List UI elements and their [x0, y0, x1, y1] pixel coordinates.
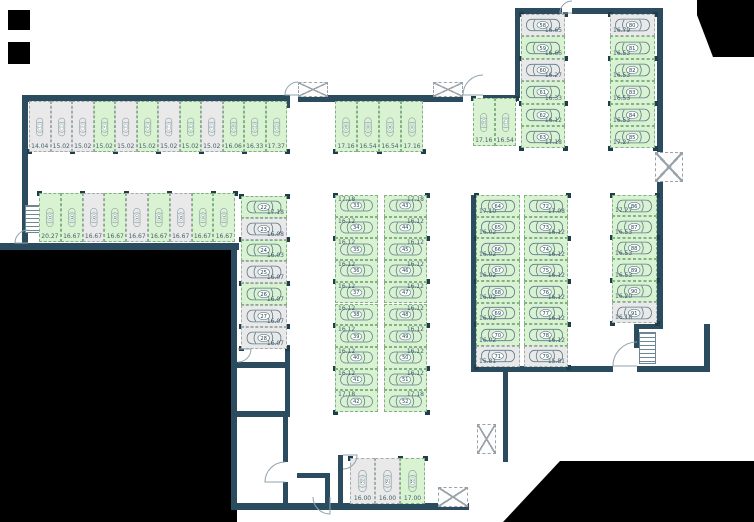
parking-spot-28[interactable]: 2816.07	[241, 327, 287, 349]
spot-area-label: 17.16	[336, 144, 356, 150]
spot-area-label: 16.12	[338, 240, 355, 246]
spot-area-label: 17.18	[407, 392, 424, 398]
spot-area-label: 16.12	[407, 240, 424, 246]
spot-area-label: 16.79	[613, 28, 630, 34]
parking-spot-2[interactable]: 215.02	[51, 101, 73, 152]
spot-area-label: 16.12	[338, 262, 355, 268]
spot-area-label: 16.65	[545, 28, 562, 34]
door-swing-arc-icon	[463, 75, 483, 95]
car-top-view-icon: 21	[216, 208, 233, 228]
parking-spot-22[interactable]: 2217.18	[241, 196, 287, 218]
parking-spot-35[interactable]: 3516.12	[335, 238, 378, 260]
spot-area-label: 16.12	[548, 273, 565, 279]
svg-text:19: 19	[179, 216, 183, 220]
spot-area-label: 16.12	[407, 349, 424, 355]
spot-area-label: 16.02	[479, 273, 496, 279]
wall	[704, 324, 710, 372]
parking-spot-62[interactable]: 6216.12	[521, 104, 565, 126]
spot-area-label: 16.53	[615, 251, 632, 257]
staircase-icon	[25, 205, 40, 233]
svg-text:16: 16	[113, 216, 117, 220]
spot-area-label: 16.53	[613, 118, 630, 124]
parking-spot-75[interactable]: 7516.12	[524, 260, 568, 282]
car-top-view-icon: 30	[359, 117, 377, 137]
spot-area-label: 15.02	[181, 144, 201, 150]
car-top-view-icon: 3	[74, 117, 92, 137]
parking-spot-23[interactable]: 2316.08	[241, 218, 287, 240]
spot-area-label: 16.33	[245, 144, 265, 150]
spot-area-label: 16.07	[267, 275, 284, 281]
crossed-shaft-icon	[438, 487, 468, 507]
parking-spot-59[interactable]: 5916.66	[521, 36, 565, 58]
parking-spot-10[interactable]: 1016.06	[223, 101, 245, 152]
svg-text:45: 45	[402, 247, 408, 253]
parking-spot-44[interactable]: 4416.12	[384, 217, 427, 239]
parking-spot-15[interactable]: 1516.67	[83, 193, 105, 242]
svg-text:55: 55	[411, 479, 415, 483]
parking-spot-27[interactable]: 2716.07	[241, 305, 287, 327]
parking-spot-1[interactable]: 114.04	[29, 101, 51, 152]
spot-area-label: 15.02	[73, 144, 93, 150]
spot-area-label: 16.07	[267, 319, 284, 325]
parking-spot-55[interactable]: 5517.00	[400, 458, 425, 504]
parking-spot-69[interactable]: 6916.02	[476, 303, 520, 325]
parking-spot-64[interactable]: 6417.10	[476, 195, 520, 217]
spot-area-label: 17.27	[613, 140, 630, 146]
spot-area-label: 17.37	[267, 144, 287, 150]
svg-text:37: 37	[353, 290, 359, 296]
spot-area-label: 17.08	[548, 209, 565, 215]
svg-text:43: 43	[402, 204, 408, 210]
spot-area-label: 16.20	[615, 294, 632, 300]
svg-text:20: 20	[200, 216, 204, 220]
svg-text:54: 54	[386, 479, 390, 483]
parking-spot-88[interactable]: 8816.53	[612, 238, 657, 259]
wall	[637, 366, 710, 372]
parking-spot-45[interactable]: 4516.12	[384, 238, 427, 260]
spot-area-label: 16.27	[545, 73, 562, 79]
parking-spot-7[interactable]: 715.02	[158, 101, 180, 152]
spot-area-label: 16.53	[613, 51, 630, 57]
parking-spot-9[interactable]: 915.02	[201, 101, 223, 152]
parking-spot-57[interactable]: 5716.54	[495, 98, 517, 146]
parking-spot-32[interactable]: 3217.16	[401, 101, 423, 152]
svg-text:49: 49	[402, 334, 408, 340]
spot-area-label: 16.67	[149, 234, 169, 240]
spot-area-label: 16.12	[548, 338, 565, 344]
car-top-view-icon: 53	[355, 470, 371, 493]
svg-text:41: 41	[353, 377, 359, 383]
spot-area-label: 16.12	[338, 306, 355, 312]
svg-text:48: 48	[402, 312, 408, 318]
spot-area-label: 16.12	[338, 349, 355, 355]
car-top-view-icon: 8	[181, 117, 199, 137]
wall	[237, 362, 290, 368]
svg-text:17: 17	[135, 216, 139, 220]
car-top-view-icon: 19	[172, 208, 189, 228]
spot-area-label: 16.06	[224, 144, 244, 150]
car-top-view-icon: 56	[475, 112, 492, 132]
spot-area-label: 16.53	[615, 273, 632, 279]
spot-area-label: 16.02	[479, 295, 496, 301]
car-top-view-icon: 55	[405, 470, 421, 493]
spot-area-label: 16.67	[193, 234, 213, 240]
spot-area-label: 17.00	[401, 496, 424, 502]
parking-spot-5[interactable]: 515.02	[115, 101, 137, 152]
spot-area-label: 16.08	[267, 232, 284, 238]
car-top-view-icon: 4	[95, 117, 113, 137]
spot-area-label: 16.33	[545, 96, 562, 102]
parking-spot-21[interactable]: 2116.67	[213, 193, 235, 242]
parking-spot-54[interactable]: 5416.00	[375, 458, 400, 504]
parking-spot-37[interactable]: 3716.12	[335, 282, 378, 304]
svg-text:13: 13	[48, 216, 52, 220]
spot-area-label: 16.12	[548, 252, 565, 258]
car-top-view-icon: 9	[203, 117, 221, 137]
spot-area-label: 16.00	[376, 496, 399, 502]
parking-spot-30[interactable]: 3016.54	[357, 101, 379, 152]
parking-spot-17[interactable]: 1716.67	[126, 193, 148, 242]
spot-area-label: 17.16	[474, 138, 494, 144]
spot-area-label: 16.07	[267, 341, 284, 347]
parking-spot-72[interactable]: 7217.08	[524, 195, 568, 217]
spot-area-label: 17.18	[338, 392, 355, 398]
spot-area-label: 16.12	[548, 230, 565, 236]
parking-spot-67[interactable]: 6716.02	[476, 260, 520, 282]
parking-spot-4[interactable]: 415.02	[94, 101, 116, 152]
wall	[0, 243, 239, 250]
parking-spot-46[interactable]: 4616.12	[384, 260, 427, 282]
spot-area-label: 16.02	[479, 338, 496, 344]
svg-text:46: 46	[402, 269, 408, 275]
spot-area-label: 16.53	[615, 230, 632, 236]
parking-spot-43[interactable]: 4317.18	[384, 195, 427, 217]
spot-area-label: 16.54	[496, 138, 516, 144]
svg-text:42: 42	[353, 399, 359, 405]
parking-spot-49[interactable]: 4916.12	[384, 325, 427, 347]
parking-spot-81[interactable]: 8116.53	[610, 36, 655, 58]
spot-area-label: 17.18	[545, 140, 562, 146]
spot-area-label: 17.18	[267, 210, 284, 216]
parking-spot-16[interactable]: 1616.67	[104, 193, 126, 242]
parking-spot-89[interactable]: 8916.53	[612, 259, 657, 280]
parking-spot-68[interactable]: 6816.02	[476, 281, 520, 303]
spot-area-label: 15.81	[548, 359, 565, 365]
parking-spot-31[interactable]: 3116.54	[379, 101, 401, 152]
spot-area-label: 16.66	[545, 51, 562, 57]
spot-area-label: 16.12	[407, 262, 424, 268]
spot-area-label: 16.12	[407, 306, 424, 312]
crossed-shaft-icon	[433, 82, 463, 97]
svg-text:50: 50	[402, 355, 408, 361]
spot-area-label: 16.02	[479, 230, 496, 236]
car-top-view-icon: 7	[160, 117, 178, 137]
parking-spot-83[interactable]: 8316.53	[610, 81, 655, 103]
wall	[237, 411, 289, 417]
spot-area-label: 16.53	[613, 73, 630, 79]
car-top-view-icon: 13	[41, 208, 58, 228]
car-top-view-icon: 15	[85, 208, 102, 228]
parking-spot-18[interactable]: 1816.67	[148, 193, 170, 242]
car-top-view-icon: 12	[267, 117, 285, 137]
wall	[503, 372, 508, 462]
spot-area-label: 14.04	[30, 144, 50, 150]
parking-spot-82[interactable]: 8216.53	[610, 59, 655, 81]
parking-spot-48[interactable]: 4816.12	[384, 304, 427, 326]
svg-text:51: 51	[402, 377, 408, 383]
svg-text:33: 33	[353, 204, 359, 210]
svg-text:35: 35	[353, 247, 359, 253]
spot-area-label: 16.12	[548, 295, 565, 301]
wall	[657, 8, 663, 154]
parking-spot-61[interactable]: 6116.33	[521, 81, 565, 103]
spot-area-label: 16.00	[351, 496, 374, 502]
parking-spot-58[interactable]: 5816.65	[521, 14, 565, 36]
parking-spot-36[interactable]: 3616.12	[335, 260, 378, 282]
parking-spot-47[interactable]: 4716.12	[384, 282, 427, 304]
car-top-view-icon: 57	[497, 112, 514, 132]
spot-area-label: 15.02	[116, 144, 136, 150]
staircase-icon	[639, 332, 656, 364]
parking-spot-24[interactable]: 2416.03	[241, 240, 287, 262]
parking-spot-34[interactable]: 3416.12	[335, 217, 378, 239]
parking-spot-20[interactable]: 2016.67	[192, 193, 214, 242]
parking-spot-79[interactable]: 7915.81	[524, 346, 568, 368]
wall	[285, 345, 290, 417]
parking-spot-51[interactable]: 5116.12	[384, 369, 427, 391]
parking-spot-50[interactable]: 5016.12	[384, 347, 427, 369]
parking-spot-66[interactable]: 6616.02	[476, 238, 520, 260]
spot-area-label: 16.12	[407, 284, 424, 290]
spot-area-label: 16.67	[84, 234, 104, 240]
parking-spot-33[interactable]: 3317.18	[335, 195, 378, 217]
door-swing-arc-icon	[265, 462, 285, 482]
parking-spot-73[interactable]: 7316.12	[524, 217, 568, 239]
car-top-view-icon: 17	[129, 208, 146, 228]
door-swing-arc-icon	[285, 82, 298, 95]
spot-area-label: 17.18	[338, 197, 355, 203]
spot-area-label: 16.67	[171, 234, 191, 240]
parking-spot-65[interactable]: 6516.02	[476, 217, 520, 239]
spot-area-label: 16.12	[338, 284, 355, 290]
wall	[325, 478, 330, 505]
parking-spot-13[interactable]: 1320.27	[39, 193, 61, 242]
svg-text:15: 15	[91, 216, 95, 220]
car-top-view-icon: 16	[107, 208, 124, 228]
spot-area-label: 16.67	[62, 234, 82, 240]
parking-spot-71[interactable]: 7115.81	[476, 346, 520, 368]
crossed-shaft-icon	[477, 424, 496, 454]
spot-area-label: 16.53	[613, 96, 630, 102]
car-top-view-icon: 18	[150, 208, 167, 228]
parking-spot-63[interactable]: 6317.18	[521, 126, 565, 148]
parking-spot-86[interactable]: 8617.27	[612, 195, 657, 216]
spot-area-label: 16.12	[548, 316, 565, 322]
parking-spot-6[interactable]: 615.02	[137, 101, 159, 152]
wall	[338, 455, 343, 505]
spot-area-label: 16.12	[338, 327, 355, 333]
crossed-shaft-icon	[298, 82, 328, 97]
parking-spot-84[interactable]: 8416.53	[610, 104, 655, 126]
parking-spot-38[interactable]: 3816.12	[335, 304, 378, 326]
car-top-view-icon: 11	[246, 117, 264, 137]
parking-spot-40[interactable]: 4016.12	[335, 347, 378, 369]
parking-spot-41[interactable]: 4116.12	[335, 369, 378, 391]
spot-area-label: 16.67	[127, 234, 147, 240]
parking-spot-39[interactable]: 3916.12	[335, 325, 378, 347]
spot-area-label: 16.12	[338, 219, 355, 225]
spot-area-label: 15.81	[479, 359, 496, 365]
car-top-view-icon: 6	[138, 117, 156, 137]
svg-text:53: 53	[361, 479, 365, 483]
parking-spot-78[interactable]: 7816.12	[524, 324, 568, 346]
parking-spot-85[interactable]: 8517.27	[610, 126, 655, 148]
car-top-view-icon: 2	[52, 117, 70, 137]
spot-area-label: 16.12	[407, 327, 424, 333]
parking-spot-90[interactable]: 9016.20	[612, 281, 657, 302]
parking-spot-76[interactable]: 7616.12	[524, 281, 568, 303]
car-top-view-icon: 29	[337, 117, 355, 137]
wall	[283, 417, 288, 462]
car-top-view-icon: 32	[403, 117, 421, 137]
spot-area-label: 16.67	[105, 234, 125, 240]
spot-area-label: 20.27	[40, 234, 60, 240]
car-top-view-icon: 10	[224, 117, 242, 137]
spot-area-label: 17.27	[615, 208, 632, 214]
spot-area-label: 16.54	[380, 144, 400, 150]
spot-area-label: 16.12	[338, 371, 355, 377]
wall	[515, 12, 520, 98]
wall	[231, 248, 237, 510]
parking-spot-77[interactable]: 7716.12	[524, 303, 568, 325]
parking-spot-8[interactable]: 815.02	[180, 101, 202, 152]
outside-building-area	[0, 250, 237, 522]
spot-area-label: 16.02	[479, 252, 496, 258]
spot-area-label: 16.67	[214, 234, 234, 240]
svg-text:44: 44	[402, 225, 408, 231]
crossed-shaft-icon	[655, 152, 683, 182]
parking-spot-74[interactable]: 7416.12	[524, 238, 568, 260]
spot-area-label: 16.18	[615, 315, 632, 321]
svg-text:34: 34	[353, 225, 359, 231]
spot-area-label: 16.07	[267, 297, 284, 303]
svg-text:39: 39	[353, 334, 359, 340]
spot-area-label: 17.18	[407, 197, 424, 203]
parking-spot-11[interactable]: 1116.33	[244, 101, 266, 152]
svg-text:47: 47	[402, 290, 408, 296]
wall	[657, 182, 663, 328]
svg-text:14: 14	[70, 216, 74, 220]
parking-spot-87[interactable]: 8716.53	[612, 216, 657, 237]
svg-text:18: 18	[157, 216, 161, 220]
svg-text:38: 38	[353, 312, 359, 318]
parking-spot-26[interactable]: 2616.07	[241, 283, 287, 305]
parking-spot-3[interactable]: 315.02	[72, 101, 94, 152]
parking-spot-56[interactable]: 5617.16	[473, 98, 495, 146]
parking-spot-14[interactable]: 1416.67	[61, 193, 83, 242]
parking-spot-60[interactable]: 6016.27	[521, 59, 565, 81]
parking-spot-19[interactable]: 1916.67	[170, 193, 192, 242]
parking-spot-12[interactable]: 1217.37	[266, 101, 288, 152]
spot-area-label: 15.02	[159, 144, 179, 150]
spot-area-label: 17.10	[479, 209, 496, 215]
car-top-view-icon: 20	[194, 208, 211, 228]
parking-spot-29[interactable]: 2917.16	[335, 101, 357, 152]
outside-building-area	[8, 42, 30, 64]
svg-text:52: 52	[402, 399, 408, 405]
parking-spot-80[interactable]: 8016.79	[610, 14, 655, 36]
spot-area-label: 17.16	[402, 144, 422, 150]
parking-spot-25[interactable]: 2516.07	[241, 261, 287, 283]
parking-spot-42[interactable]: 4217.18	[335, 390, 378, 412]
car-top-view-icon: 31	[381, 117, 399, 137]
spot-area-label: 16.03	[267, 253, 284, 259]
spot-area-label: 16.12	[545, 118, 562, 124]
spot-area-label: 16.12	[407, 371, 424, 377]
car-top-view-icon: 1	[31, 117, 49, 137]
spot-area-label: 15.02	[138, 144, 158, 150]
car-top-view-icon: 5	[117, 117, 135, 137]
spot-area-label: 16.12	[407, 219, 424, 225]
parking-spot-91[interactable]: 9116.18	[612, 302, 657, 323]
parking-spot-53[interactable]: 5316.00	[350, 458, 375, 504]
spot-area-label: 15.02	[95, 144, 115, 150]
parking-floor-plan: 114.04215.02315.02415.02515.02615.02715.…	[0, 0, 754, 522]
svg-text:36: 36	[353, 269, 359, 275]
wall	[231, 503, 469, 510]
spot-area-label: 16.54	[358, 144, 378, 150]
outside-building-area	[8, 10, 30, 30]
spot-area-label: 16.02	[479, 316, 496, 322]
svg-text:21: 21	[222, 216, 226, 220]
car-top-view-icon: 14	[63, 208, 80, 228]
svg-text:40: 40	[353, 355, 359, 361]
spot-area-label: 15.02	[202, 144, 222, 150]
spot-area-label: 15.02	[52, 144, 72, 150]
car-top-view-icon: 54	[380, 470, 396, 493]
parking-spot-70[interactable]: 7016.02	[476, 324, 520, 346]
parking-spot-52[interactable]: 5217.18	[384, 390, 427, 412]
